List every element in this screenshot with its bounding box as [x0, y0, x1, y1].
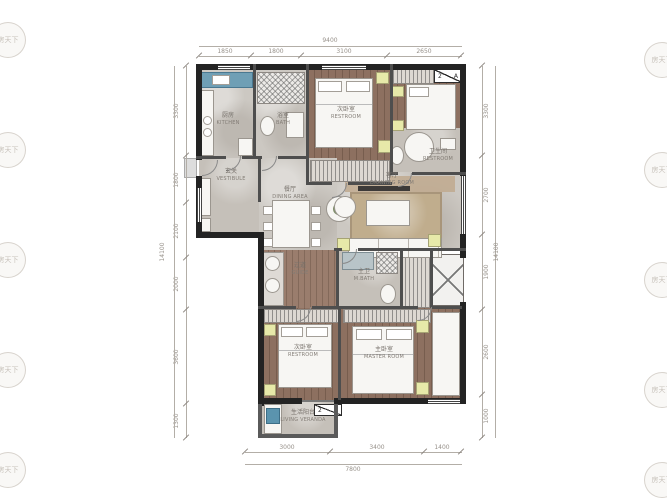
watermark-badge: 房天下: [0, 452, 26, 488]
dimension-line: [199, 56, 462, 57]
side-table: [428, 234, 441, 247]
partition: [278, 156, 308, 159]
kitchen-sink: [212, 75, 230, 85]
dimension-value: 2600: [483, 336, 493, 368]
wall: [258, 398, 302, 404]
room-label-master-bedroom: 主卧室MASTER ROOM: [364, 346, 404, 360]
room-label-bedroom-top: 次卧室RESTROOM: [331, 106, 361, 120]
partition: [258, 158, 261, 202]
pillow: [306, 327, 328, 337]
dimension-tick: [183, 434, 189, 440]
pillow: [409, 87, 429, 97]
section-letter: A: [454, 73, 458, 80]
watermark-badge: 房天下: [644, 262, 667, 298]
dimension-value: 14100: [159, 236, 169, 268]
wall: [460, 302, 466, 404]
shower: [376, 252, 398, 274]
room-label-corridor: 过道GUIDE: [291, 262, 308, 276]
wall: [196, 232, 264, 238]
dimension-line: [186, 66, 187, 438]
pillow: [318, 81, 342, 92]
wall: [460, 234, 466, 258]
wall: [460, 64, 466, 176]
dimension-value: 9400: [317, 37, 343, 44]
room-label-vestibule: 玄关VESTIBULE: [216, 168, 245, 182]
dimension-value: 2650: [411, 48, 437, 55]
partition: [338, 306, 341, 400]
dimension-value: 1400: [429, 444, 455, 451]
balcony-wall: [334, 402, 338, 438]
dining-table: [272, 200, 310, 248]
room-label-bedroom-bottom: 次卧室RESTROOM: [288, 344, 318, 358]
stove-burner: [203, 128, 212, 137]
partition: [306, 64, 309, 184]
partition: [306, 182, 332, 185]
dimension-value: 3300: [483, 95, 493, 127]
wash-basin: [265, 278, 280, 293]
partition: [430, 250, 433, 308]
watermark-badge: 房天下: [0, 132, 26, 168]
room-label-kitchen: 厨房KITCHEN: [216, 112, 239, 126]
room-label-veranda: 生活阳台LIVING VERANDA: [280, 409, 325, 423]
glass-door: [300, 400, 336, 402]
window: [197, 188, 202, 222]
dimension-line: [245, 452, 462, 453]
pillow: [346, 81, 370, 92]
blanket-line: [316, 104, 372, 105]
partition: [432, 306, 462, 309]
watermark-badge: 房天下: [644, 372, 667, 408]
toilet: [380, 284, 396, 304]
dimension-value: 1000: [483, 400, 493, 432]
armchair: [334, 196, 356, 218]
chair: [263, 222, 273, 231]
shower: [257, 72, 305, 104]
room-label-bath: 浴室BATH: [276, 112, 290, 126]
dimension-line: [245, 464, 462, 465]
dimension-tick: [479, 434, 485, 440]
dimension-value: 3100: [331, 48, 357, 55]
window: [461, 176, 466, 234]
window: [218, 65, 250, 70]
coffee-table: [366, 200, 410, 226]
window: [322, 65, 366, 70]
pillow: [281, 327, 303, 337]
nightstand: [392, 86, 404, 97]
dimension-value: 14100: [493, 236, 503, 268]
partition: [412, 172, 466, 175]
chair: [311, 206, 321, 215]
pillow: [386, 329, 412, 340]
nightstand: [416, 320, 429, 333]
dimension-line: [174, 66, 175, 438]
chair: [263, 206, 273, 215]
dimension-line: [199, 46, 462, 47]
floorplan-canvas: 房天下 房天下 房天下 房天下 房天下 房天下 房天下 房天下 房天下 房天下 …: [0, 0, 667, 500]
room-label-bathroom-top: 卫生间RESTROOM: [423, 148, 453, 162]
dimension-value: 1850: [212, 48, 238, 55]
balcony-wall: [258, 402, 262, 438]
partition: [400, 250, 403, 308]
dimension-tick: [458, 52, 464, 58]
partition: [336, 250, 339, 308]
pillow: [356, 329, 382, 340]
nightstand: [264, 324, 276, 336]
section-marker: 2 A: [434, 69, 462, 83]
fridge: [238, 138, 253, 156]
room-label-living: 客厅DRAWING ROOM: [370, 172, 414, 186]
watermark-badge: 房天下: [0, 242, 26, 278]
watermark-badge: 房天下: [644, 152, 667, 188]
bay-window-seat: [432, 312, 460, 396]
dimension-tick: [458, 448, 464, 454]
wall: [258, 232, 264, 406]
wash-basin: [265, 256, 280, 271]
watermark-badge: 房天下: [0, 22, 26, 58]
watermark-badge: 房天下: [644, 462, 667, 498]
closet: [400, 250, 432, 308]
section-num: 2: [438, 73, 442, 80]
room-label-dining: 餐厅DINING AREA: [272, 186, 307, 200]
partition: [312, 306, 418, 309]
partition: [390, 64, 393, 175]
ac-platform: [432, 254, 464, 306]
dimension-value: 1900: [483, 256, 493, 288]
toilet: [260, 116, 275, 136]
window: [428, 399, 460, 404]
wall: [196, 64, 202, 160]
partition: [358, 248, 466, 251]
partition: [196, 156, 226, 159]
washer: [266, 408, 280, 424]
balcony-wall: [258, 434, 338, 438]
nightstand: [416, 382, 429, 395]
nightstand: [392, 120, 404, 131]
room-label-master-bath: 主卫M.BATH: [354, 268, 374, 282]
nightstand: [264, 384, 276, 396]
chair: [311, 222, 321, 231]
stove-burner: [203, 116, 212, 125]
chair: [263, 238, 273, 247]
dimension-value: 1800: [263, 48, 289, 55]
watermark-badge: 房天下: [644, 42, 667, 78]
wardrobe: [392, 68, 434, 84]
nightstand: [376, 72, 389, 84]
dimension-value: 3000: [274, 444, 300, 451]
chair: [311, 238, 321, 247]
watermark-badge: 房天下: [0, 352, 26, 388]
dimension-value: 7800: [340, 466, 366, 473]
partition: [258, 306, 296, 309]
partition: [253, 64, 256, 158]
dimension-value: 2700: [483, 179, 493, 211]
tv: [358, 186, 410, 191]
dimension-value: 3400: [364, 444, 390, 451]
